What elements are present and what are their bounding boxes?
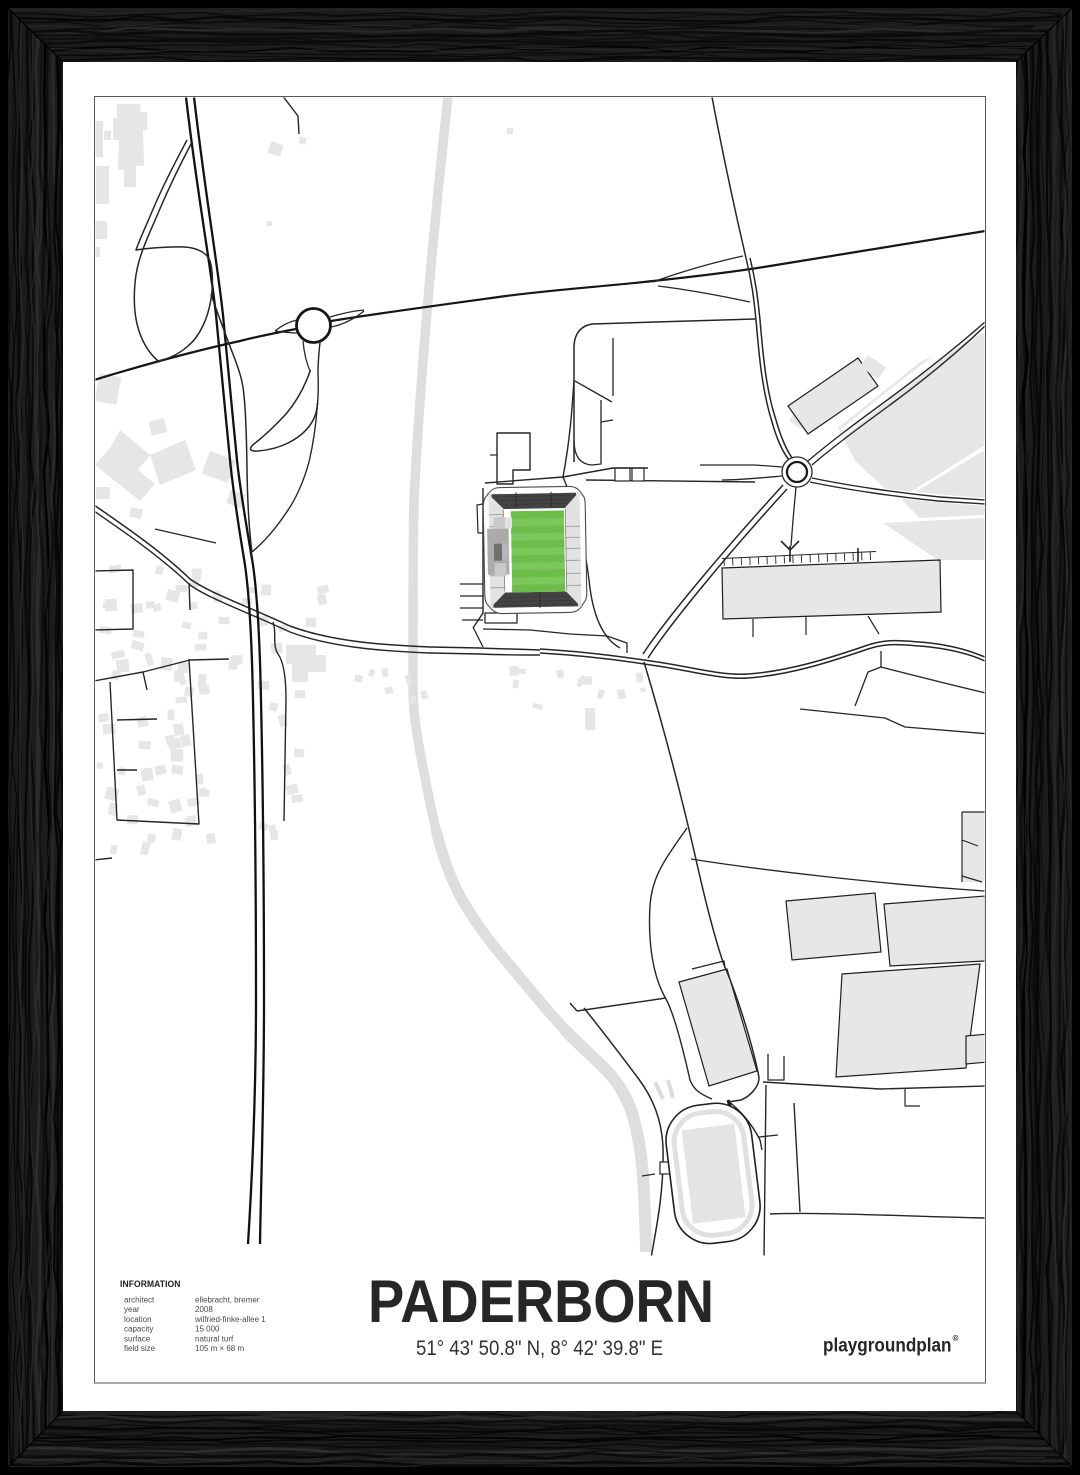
svg-text:natural turf: natural turf xyxy=(195,1334,234,1343)
svg-text:2008: 2008 xyxy=(195,1305,213,1314)
svg-text:architect: architect xyxy=(124,1296,155,1305)
svg-text:year: year xyxy=(124,1305,140,1314)
svg-text:105 m × 68 m: 105 m × 68 m xyxy=(195,1344,244,1353)
svg-text:15 000: 15 000 xyxy=(195,1325,220,1334)
svg-text:playgroundplan: playgroundplan xyxy=(823,1336,952,1357)
svg-text:surface: surface xyxy=(124,1334,151,1343)
svg-text:PADERBORN: PADERBORN xyxy=(368,1268,714,1335)
svg-text:wilfried-finke-allee 1: wilfried-finke-allee 1 xyxy=(194,1315,266,1324)
svg-text:INFORMATION: INFORMATION xyxy=(120,1279,181,1290)
svg-text:ellebracht, bremer: ellebracht, bremer xyxy=(195,1296,260,1305)
svg-text:®: ® xyxy=(953,1334,959,1343)
svg-text:location: location xyxy=(124,1315,152,1324)
svg-text:capacity: capacity xyxy=(124,1325,153,1334)
svg-text:51° 43' 50.8" N, 8° 42' 39.8": 51° 43' 50.8" N, 8° 42' 39.8" E xyxy=(416,1337,663,1360)
svg-text:field size: field size xyxy=(124,1344,156,1353)
